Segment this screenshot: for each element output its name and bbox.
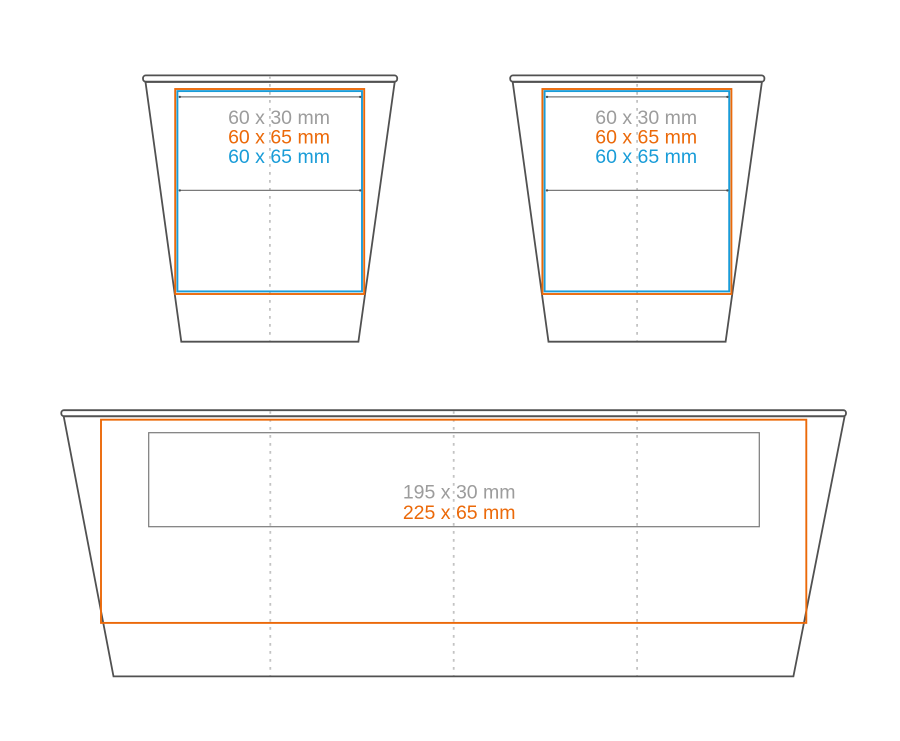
svg-text:60 x 65 mm: 60 x 65 mm xyxy=(595,146,697,168)
svg-text:60 x 65 mm: 60 x 65 mm xyxy=(228,146,330,168)
svg-text:225 x 65 mm: 225 x 65 mm xyxy=(403,502,516,524)
svg-text:195 x 30 mm: 195 x 30 mm xyxy=(403,481,516,503)
